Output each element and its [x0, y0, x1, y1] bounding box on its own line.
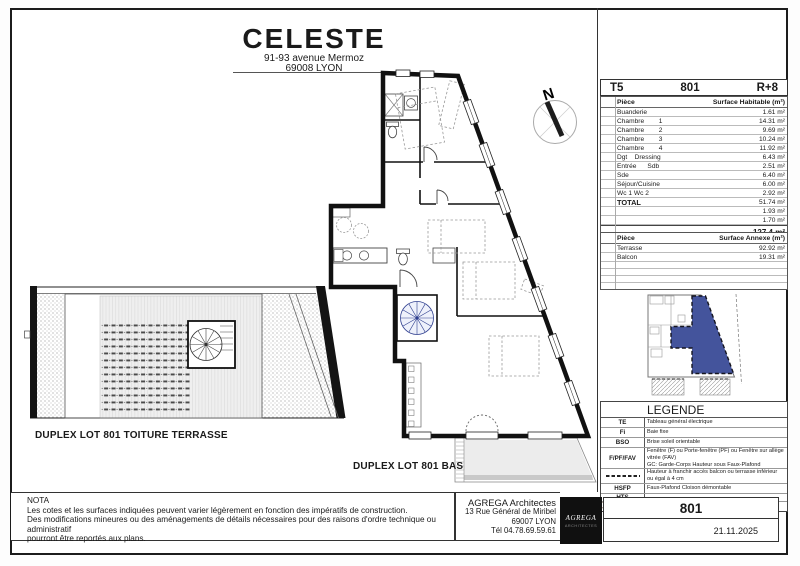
legend-symbol-code: HSFP	[601, 484, 645, 493]
architect-address1: 13 Rue Général de Miribel	[456, 507, 556, 516]
dashed-line-icon	[606, 475, 640, 477]
nota-line3: pourront être reportés aux plans.	[27, 534, 448, 544]
col-surface-annexe: Surface Annexe (m²)	[719, 235, 787, 242]
legend-table: LEGENDE TETableau général électriqueFiBa…	[600, 401, 788, 512]
surface-table-row: 1.93 m²	[601, 207, 787, 216]
unit-level: R+8	[757, 82, 778, 94]
nota-box: NOTA Les cotes et les surfaces indiquées…	[11, 492, 455, 541]
terrace-plan	[20, 278, 350, 430]
legend-row: HSFPFaux-Plafond Cloison démontable	[601, 484, 787, 494]
room-surface-value: 92.92 m²	[759, 245, 787, 252]
room-surface-value: 6.00 m²	[763, 181, 787, 188]
agrega-logo: AGREGA ARCHITECTES	[560, 497, 602, 544]
lower-plan-label: DUPLEX LOT 801 BAS	[353, 461, 463, 472]
room-label: Sde	[601, 172, 763, 179]
unit-header: T5 801 R+8	[600, 79, 788, 96]
room-label: Buanderie	[601, 109, 763, 116]
surface-table-row: Chambre 310.24 m²	[601, 135, 787, 144]
room-label: Chambre 2	[601, 127, 763, 134]
stamp-lot-number: 801	[604, 498, 778, 519]
room-surface-value: 10.24 m²	[759, 136, 787, 143]
empty-row	[601, 276, 787, 283]
keyplan-balconies	[652, 379, 730, 395]
col-piece: Pièce	[601, 99, 713, 106]
room-label: Séjour/Cuisine	[601, 181, 763, 188]
room-surface-value: 51.74 m²	[759, 199, 787, 206]
surface-habitable-table: Pièce Surface Habitable (m²) Buanderie1.…	[600, 96, 788, 251]
room-label: Dgt Dressing	[601, 154, 763, 161]
north-arrow: N	[517, 80, 591, 154]
terrace-spiral-staircase	[188, 321, 235, 368]
surface-table-row: Buanderie1.61 m²	[601, 108, 787, 117]
lot-stamp-box: 801 21.11.2025	[603, 497, 779, 542]
spiral-staircase	[401, 302, 434, 335]
surface-table-row: Chambre 114.31 m²	[601, 117, 787, 126]
col-surface-habitable: Surface Habitable (m²)	[713, 99, 787, 106]
nota-line2: Des modifications mineures ou des aménag…	[27, 515, 448, 534]
surface-table-row: Dgt Dressing6.43 m²	[601, 153, 787, 162]
surface-annexe-table: Pièce Surface Annexe (m²) Terrasse92.92 …	[600, 232, 788, 290]
room-surface-value: 6.43 m²	[763, 154, 787, 161]
annexe-table-row: Terrasse92.92 m²	[601, 244, 787, 253]
unit-lot: 801	[680, 82, 699, 94]
room-label: TOTAL	[601, 198, 759, 207]
pergola-slats	[101, 324, 190, 415]
annexe-table-row: Balcon19.31 m²	[601, 253, 787, 262]
terrace-plan-label: DUPLEX LOT 801 TOITURE TERRASSE	[35, 430, 228, 441]
legend-row: BSOBrise soleil orientable	[601, 438, 787, 448]
legend-row: F/PF/FAVFenêtre (F) ou Porte-fenêtre (PF…	[601, 448, 787, 469]
room-surface-value: 14.31 m²	[759, 118, 787, 125]
empty-row	[601, 269, 787, 276]
architect-name: AGREGA Architectes	[456, 498, 556, 507]
legend-symbol-code: TE	[601, 418, 645, 427]
logo-text-bottom: ARCHITECTES	[565, 524, 597, 528]
legend-row: TETableau général électrique	[601, 418, 787, 428]
room-surface-value: 1.70 m²	[763, 217, 787, 224]
logo-text-top: AGREGA	[566, 514, 597, 522]
surface-table-row: Chambre 29.69 m²	[601, 126, 787, 135]
annexe-table-header: Pièce Surface Annexe (m²)	[601, 233, 787, 244]
unit-type: T5	[610, 82, 623, 94]
room-surface-value: 11.92 m²	[759, 145, 787, 152]
legend-title: LEGENDE	[601, 402, 787, 418]
room-label: Chambre 1	[601, 118, 759, 125]
room-surface-value: 1.61 m²	[763, 109, 787, 116]
nota-title: NOTA	[27, 496, 448, 506]
kitchen-counter	[333, 248, 387, 263]
room-surface-value: 2.92 m²	[763, 190, 787, 197]
room-surface-value: 6.40 m²	[763, 172, 787, 179]
room-label: Terrasse	[601, 245, 759, 252]
legend-symbol-code: Fi	[601, 428, 645, 437]
stamp-date: 21.11.2025	[604, 519, 778, 543]
legend-row: Hauteur à franchir accès balcon ou terra…	[601, 469, 787, 484]
empty-row	[601, 262, 787, 269]
legend-row: FiBaie fixe	[601, 428, 787, 438]
room-label: Wc 1 Wc 2	[601, 190, 763, 197]
legend-description: Faux-Plafond Cloison démontable	[645, 484, 787, 493]
legend-symbol-code: BSO	[601, 438, 645, 447]
dashed-line-symbol	[601, 469, 645, 483]
surface-table-row: Entrée Sdb2.51 m²	[601, 162, 787, 171]
terrace-structure	[25, 286, 346, 418]
nota-line1: Les cotes et les surfaces indiquées peuv…	[27, 506, 448, 516]
room-surface-value: 2.51 m²	[763, 163, 787, 170]
room-label: Chambre 3	[601, 136, 759, 143]
legend-description: Baie fixe	[645, 428, 787, 437]
surface-table-header: Pièce Surface Habitable (m²)	[601, 97, 787, 108]
legend-description: Hauteur à franchir accès balcon ou terra…	[645, 469, 787, 483]
north-label: N	[541, 85, 557, 105]
room-surface-value: 9.69 m²	[763, 127, 787, 134]
balcony-area	[455, 438, 596, 482]
room-label: Chambre 4	[601, 145, 759, 152]
architect-block: AGREGA Architectes 13 Rue Général de Mir…	[455, 492, 560, 541]
col-piece: Pièce	[601, 235, 719, 242]
room-label: Entrée Sdb	[601, 163, 763, 170]
architect-phone: Tél 04.78.69.59.61	[456, 526, 556, 535]
keyplan-property-line	[736, 294, 742, 384]
north-needle	[547, 102, 562, 136]
surface-table-row: Séjour/Cuisine6.00 m²	[601, 180, 787, 189]
surface-table-row: Chambre 411.92 m²	[601, 144, 787, 153]
surface-table-row: TOTAL51.74 m²	[601, 198, 787, 207]
surface-table-row: 1.70 m²	[601, 216, 787, 225]
project-name: CELESTE	[184, 24, 444, 54]
room-label: Balcon	[601, 254, 759, 261]
room-surface-value: 1.93 m²	[763, 208, 787, 215]
surface-table-row: Sde6.40 m²	[601, 171, 787, 180]
room-surface-value: 19.31 m²	[759, 254, 787, 261]
key-plan	[625, 288, 795, 400]
legend-description: Fenêtre (F) ou Porte-fenêtre (PF) ou Fen…	[645, 448, 787, 468]
legend-symbol-code: F/PF/FAV	[601, 448, 645, 468]
architect-address2: 69007 LYON	[456, 517, 556, 526]
legend-description: Tableau général électrique	[645, 418, 787, 427]
legend-description: Brise soleil orientable	[645, 438, 787, 447]
